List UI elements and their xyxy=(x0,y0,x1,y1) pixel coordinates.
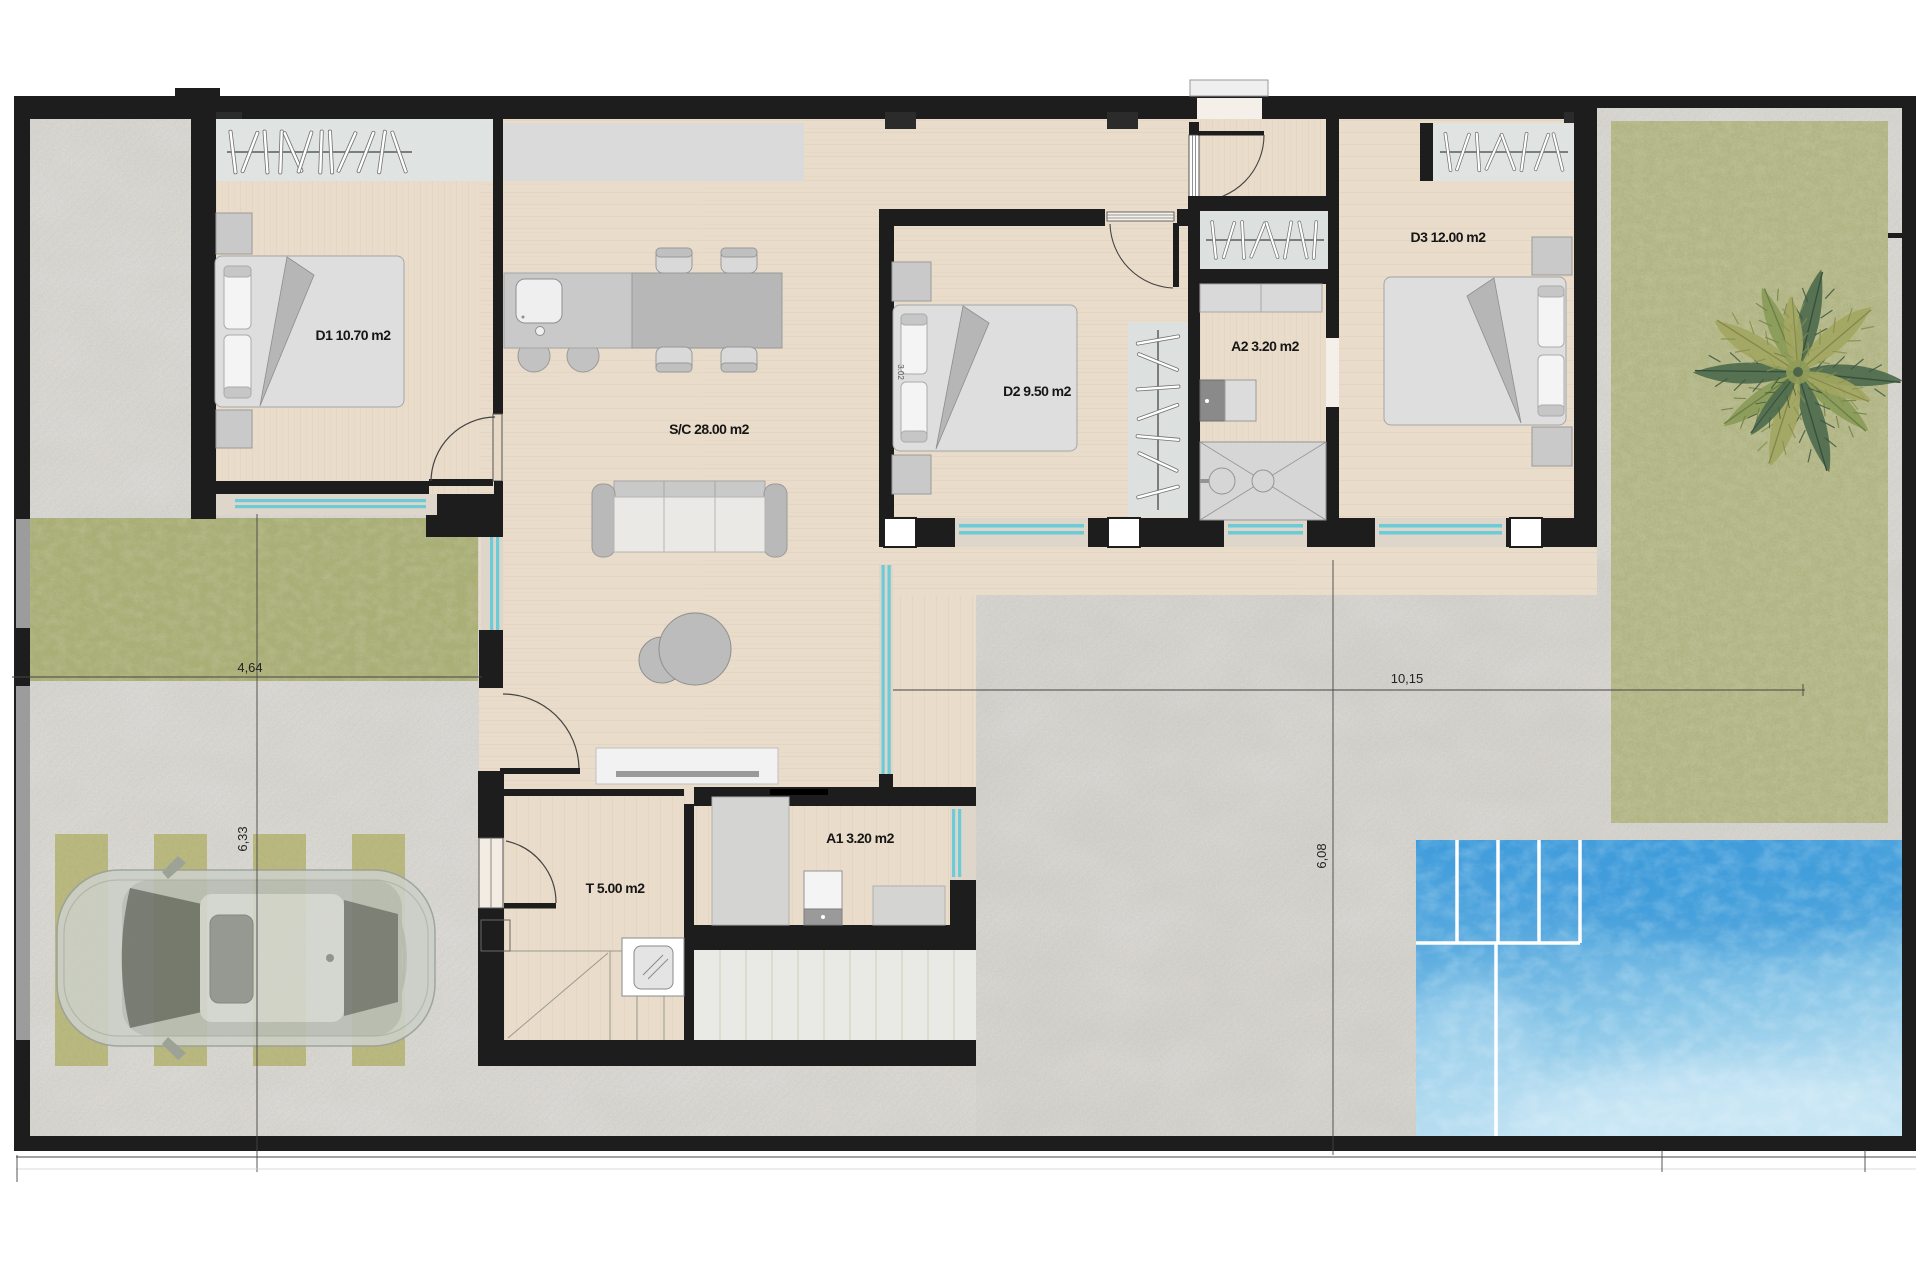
svg-text:D1 10.70 m2: D1 10.70 m2 xyxy=(316,327,392,343)
svg-text:T 5.00 m2: T 5.00 m2 xyxy=(586,880,646,896)
svg-text:3.02: 3.02 xyxy=(896,364,905,380)
svg-text:10,15: 10,15 xyxy=(1391,671,1424,686)
svg-text:4,64: 4,64 xyxy=(237,660,262,675)
svg-text:6,33: 6,33 xyxy=(235,826,250,851)
svg-text:6,08: 6,08 xyxy=(1314,843,1329,868)
svg-text:D2 9.50 m2: D2 9.50 m2 xyxy=(1003,383,1071,399)
svg-text:S/C 28.00 m2: S/C 28.00 m2 xyxy=(669,421,750,437)
svg-text:D3 12.00 m2: D3 12.00 m2 xyxy=(1411,229,1487,245)
svg-text:A1 3.20 m2: A1 3.20 m2 xyxy=(826,830,894,846)
svg-text:A2 3.20 m2: A2 3.20 m2 xyxy=(1231,338,1299,354)
